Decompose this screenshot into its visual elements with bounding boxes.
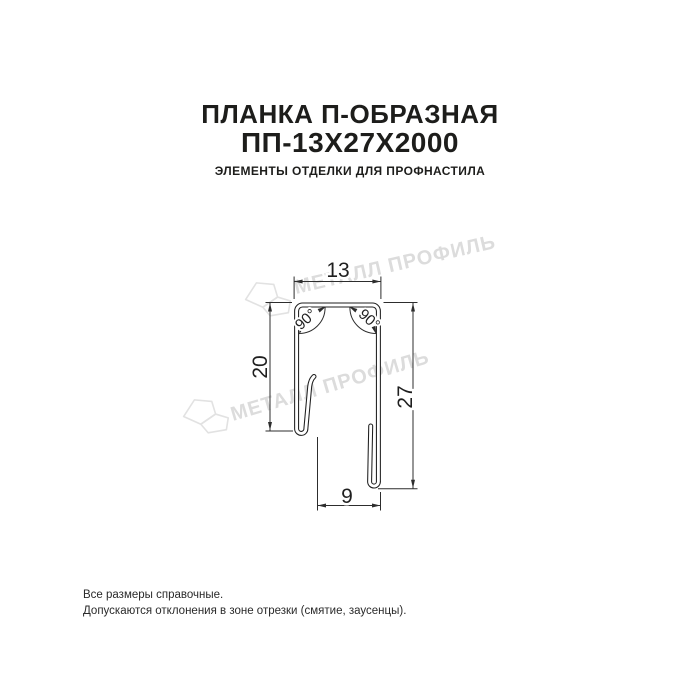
product-spec-page: ПЛАНКА П-ОБРАЗНАЯ ПП-13Х27Х2000 ЭЛЕМЕНТЫ…: [0, 0, 700, 700]
dim-left-height-label: 20: [249, 355, 272, 378]
dim-bottom-width-label: 9: [341, 485, 353, 508]
metal-profile-logo-icon: [244, 279, 292, 319]
metal-profile-logo-icon: [182, 396, 230, 436]
footnotes: Все размеры справочные. Допускаются откл…: [83, 588, 406, 619]
footnote-line1: Все размеры справочные.: [83, 588, 406, 604]
watermark-text: МЕТАЛЛ ПРОФИЛЬ: [292, 231, 498, 299]
footnote-line2: Допускаются отклонения в зоне отрезки (с…: [83, 604, 406, 620]
dim-right-height-label: 27: [394, 385, 417, 408]
dim-top-width-label: 13: [326, 259, 349, 282]
